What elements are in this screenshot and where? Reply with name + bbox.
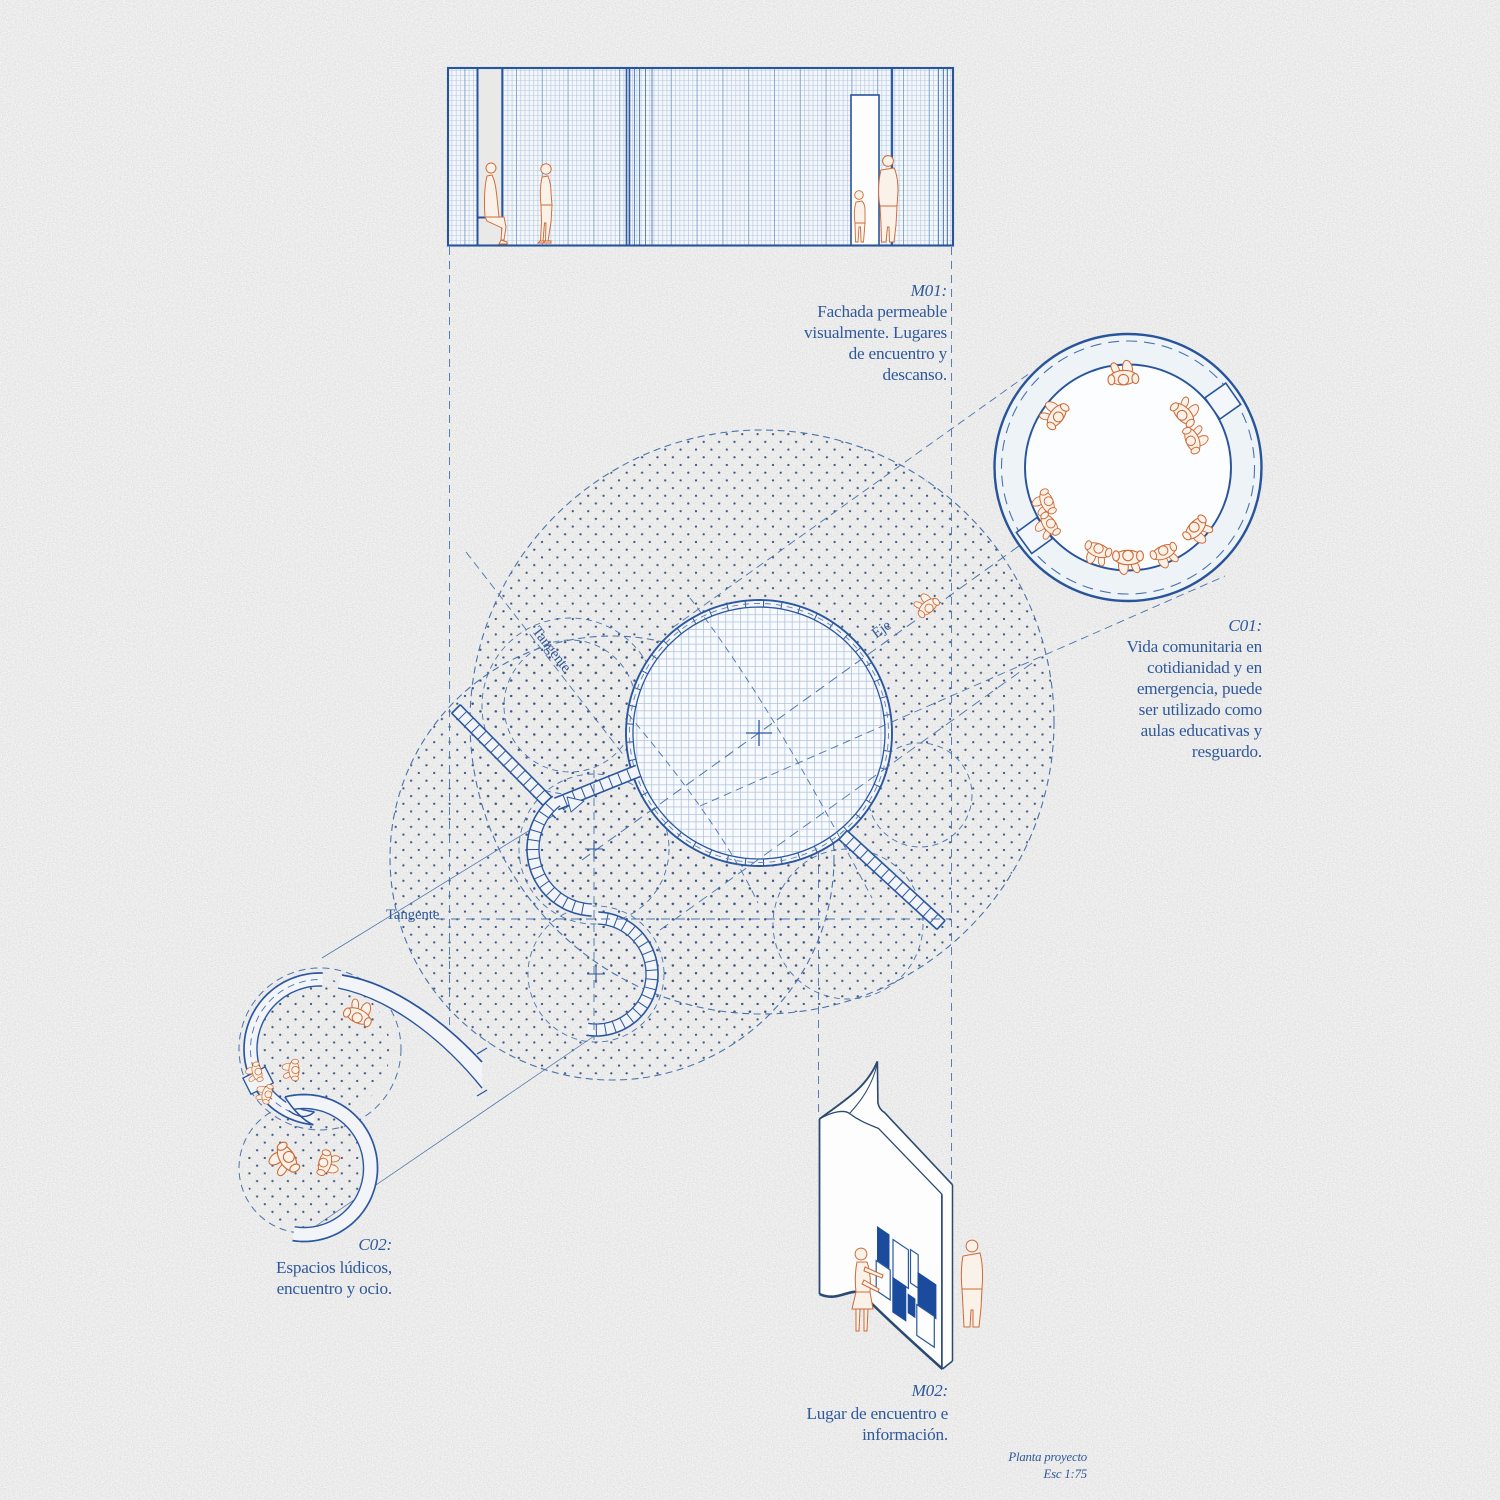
svg-text:C01:: C01:: [1228, 616, 1262, 635]
svg-text:Fachada permeable: Fachada permeable: [817, 302, 947, 321]
svg-text:M01:: M01:: [910, 281, 947, 300]
svg-text:Espacios lúdicos,: Espacios lúdicos,: [276, 1258, 392, 1277]
svg-text:Lugar de encuentro e: Lugar de encuentro e: [806, 1404, 948, 1423]
svg-text:C02:: C02:: [358, 1235, 392, 1254]
svg-text:Planta proyecto: Planta proyecto: [1007, 1450, 1087, 1464]
svg-text:visualmente. Lugares: visualmente. Lugares: [804, 323, 948, 342]
svg-text:Vida comunitaria en: Vida comunitaria en: [1127, 637, 1263, 656]
svg-text:resguardo.: resguardo.: [1192, 742, 1262, 761]
svg-text:cotidianidad y en: cotidianidad y en: [1147, 658, 1263, 677]
svg-text:emergencia, puede: emergencia, puede: [1137, 679, 1263, 698]
svg-text:ser utilizado como: ser utilizado como: [1139, 700, 1262, 719]
svg-text:descanso.: descanso.: [882, 365, 947, 384]
svg-text:M02:: M02:: [911, 1381, 948, 1400]
svg-text:encuentro y ocio.: encuentro y ocio.: [277, 1279, 392, 1298]
svg-text:aulas educativas y: aulas educativas y: [1141, 721, 1263, 740]
svg-text:Tangente: Tangente: [386, 907, 440, 923]
svg-text:de encuentro y: de encuentro y: [849, 344, 948, 363]
svg-text:Esc 1:75: Esc 1:75: [1042, 1467, 1087, 1481]
svg-text:información.: información.: [862, 1425, 948, 1444]
